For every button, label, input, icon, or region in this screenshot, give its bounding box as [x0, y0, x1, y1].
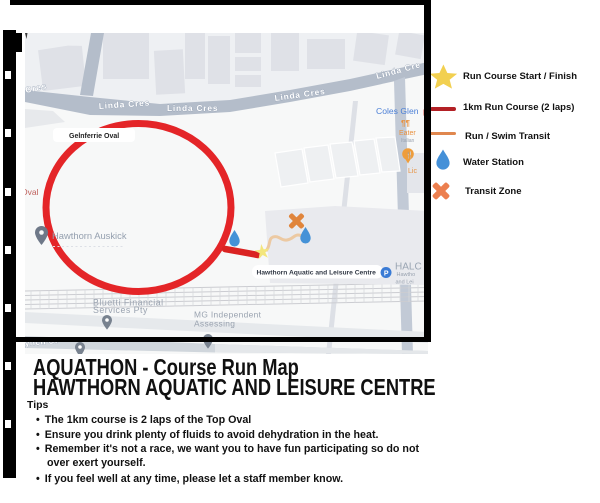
svg-text:🍴: 🍴	[406, 151, 414, 159]
svg-text:Eater: Eater	[399, 130, 416, 137]
svg-text:Gelnferrie Oval: Gelnferrie Oval	[69, 133, 119, 140]
svg-text:¶¶: ¶¶	[401, 119, 410, 128]
svg-text:Services Pty: Services Pty	[93, 305, 148, 315]
svg-text:Assessing: Assessing	[194, 319, 235, 329]
svg-text:Hawtho: Hawtho	[397, 272, 416, 278]
svg-text:Oval: Oval	[25, 187, 39, 197]
svg-text:Linda Cres: Linda Cres	[167, 103, 218, 113]
svg-text:Lic: Lic	[408, 168, 417, 175]
svg-text:HALC: HALC	[395, 262, 422, 273]
svg-text:Italian: Italian	[401, 138, 415, 144]
svg-text:Hawthorn Auskick: Hawthorn Auskick	[52, 230, 127, 241]
svg-text:Hawthorn Aquatic and Leisure C: Hawthorn Aquatic and Leisure Centre	[257, 270, 377, 277]
svg-text:Coles Glen: Coles Glen	[376, 106, 419, 116]
svg-text:P: P	[384, 270, 389, 277]
svg-text:and Lei: and Lei	[396, 280, 414, 286]
